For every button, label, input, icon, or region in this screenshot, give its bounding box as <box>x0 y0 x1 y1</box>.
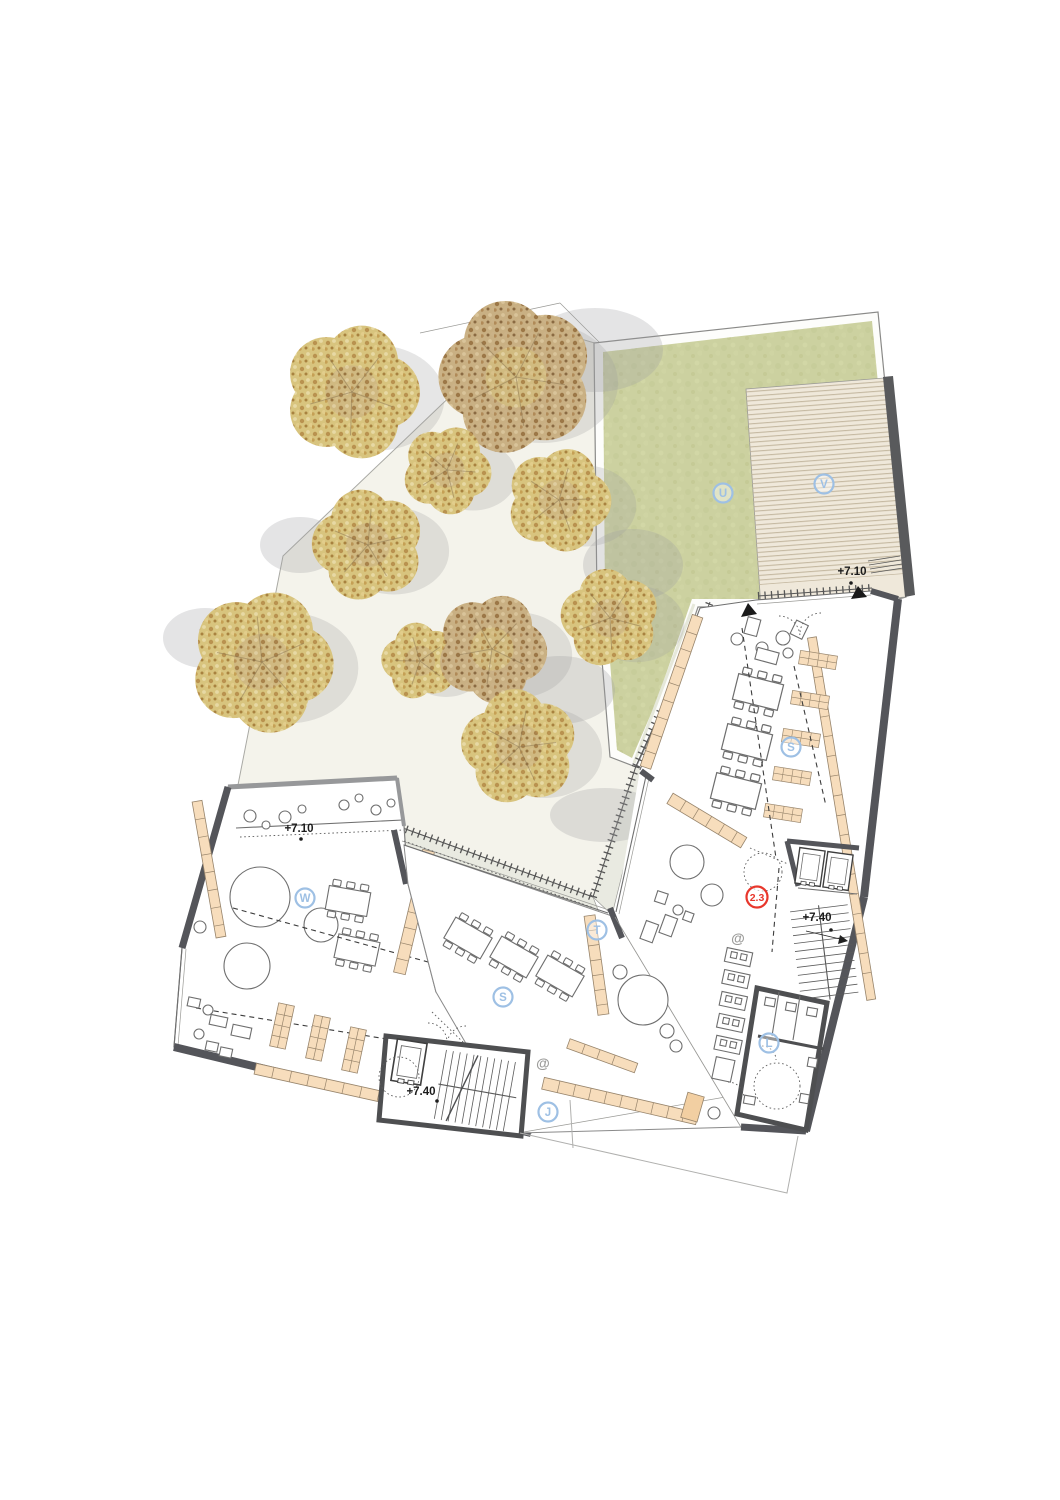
round-table <box>224 943 270 989</box>
zone-label-lawn-u: U <box>714 484 733 503</box>
zone-label-corridor-j: J <box>539 1103 558 1122</box>
floor-plan-page: +7.10+7.10+7.40+7.40 @@ UVSWTSLJ2.3 <box>0 0 1060 1500</box>
elevator <box>391 1039 427 1086</box>
zone-label-text: S <box>787 742 795 754</box>
zone-label-text: T <box>593 925 600 937</box>
zone-label-text: S <box>499 992 507 1004</box>
table-six-seats <box>324 879 372 924</box>
level-dot <box>849 581 853 585</box>
west-stair-box <box>379 1036 528 1136</box>
zone-label-text: L <box>765 1038 772 1050</box>
level-dot <box>435 1099 439 1103</box>
level-dot <box>829 928 833 932</box>
zone-label-toilets-l: L <box>760 1034 779 1053</box>
zone-label-text: U <box>719 488 727 500</box>
round-table <box>230 867 290 927</box>
elevator <box>795 848 825 888</box>
level-text: +7.10 <box>284 823 313 835</box>
table-six-seats <box>333 927 382 973</box>
zone-label-deck-v: V <box>815 475 834 494</box>
zone-label-text: V <box>820 479 828 491</box>
zone-label-text: W <box>300 893 311 905</box>
level-text: +7.40 <box>406 1086 435 1098</box>
media-mark-corridor: @ <box>536 1055 550 1071</box>
level-dot <box>299 837 303 841</box>
media-mark-hall: @ <box>731 930 745 946</box>
elevator <box>823 852 853 892</box>
zone-label-room-s-middle: S <box>494 988 513 1007</box>
zone-label-room-s-upper: S <box>782 738 801 757</box>
zone-label-text: J <box>545 1107 551 1119</box>
zone-label-room-w: W <box>296 889 315 908</box>
room-number-text: 2.3 <box>750 892 765 904</box>
level-text: +7.40 <box>802 912 831 924</box>
floor-plan-drawing: +7.10+7.10+7.40+7.40 @@ UVSWTSLJ2.3 <box>0 0 1060 1500</box>
level-text: +7.10 <box>837 566 866 578</box>
room-number-badge: 2.3 <box>747 887 768 908</box>
zone-label-terrace-t: T <box>588 921 607 940</box>
